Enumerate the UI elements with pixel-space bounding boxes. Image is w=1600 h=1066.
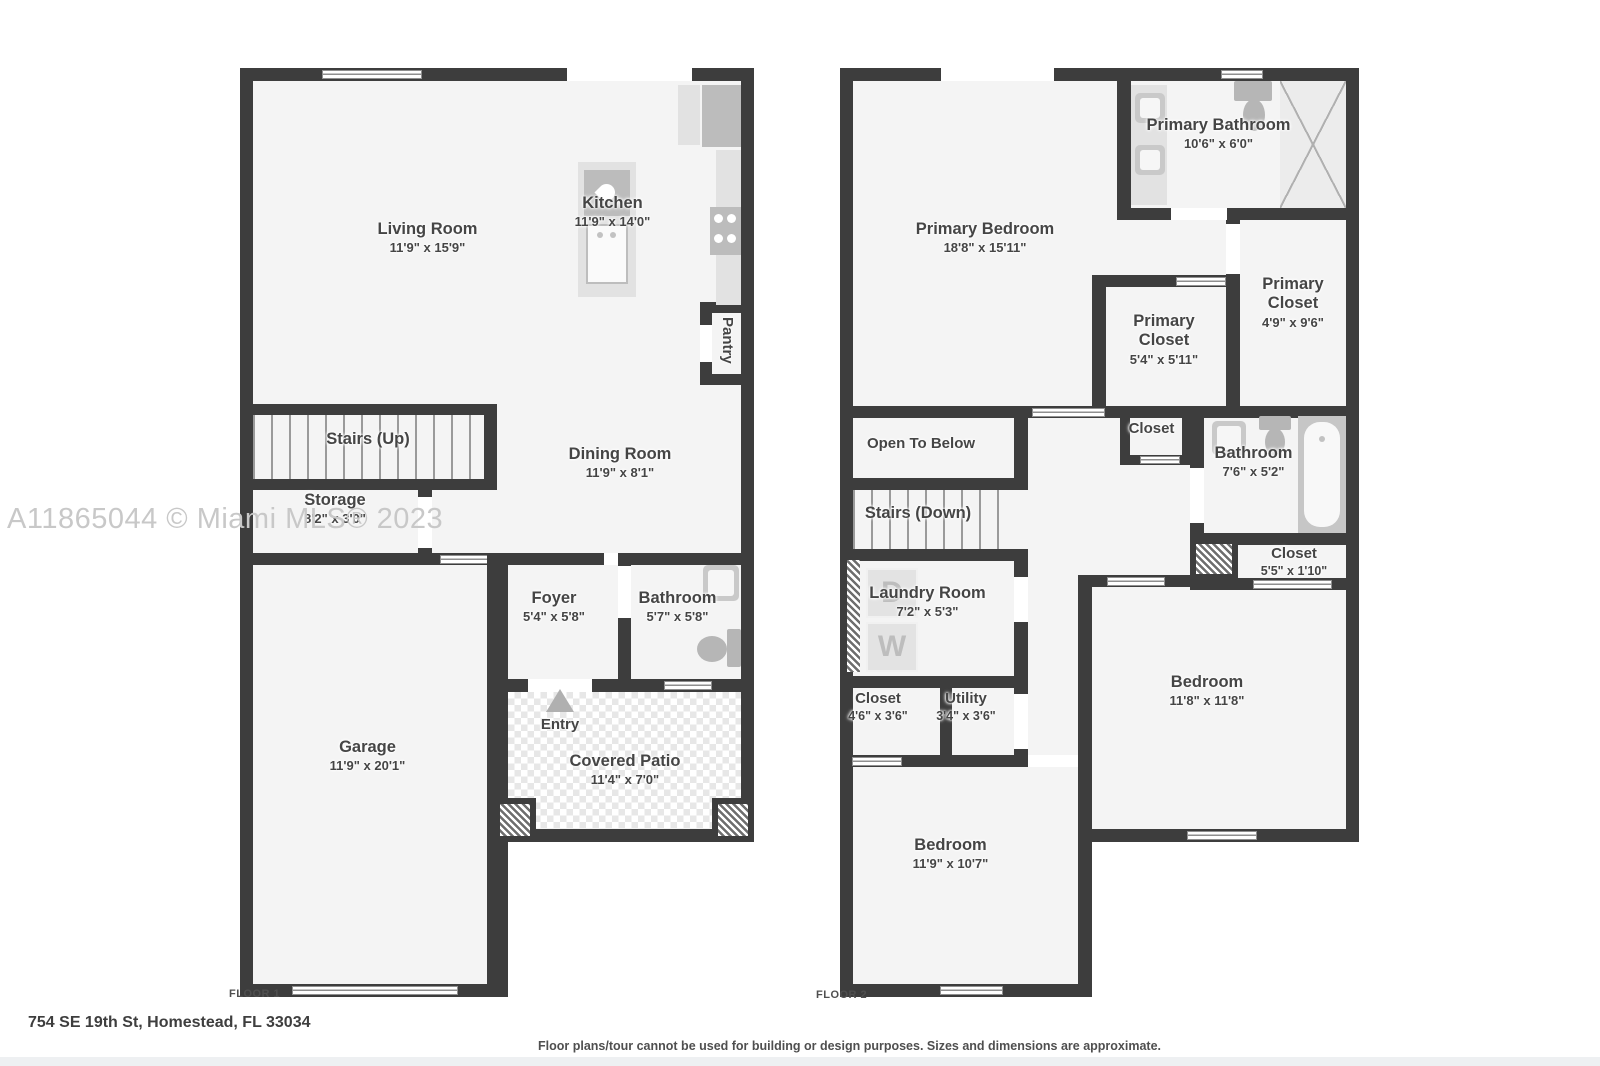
garage-footprint (240, 553, 494, 997)
door-opening (1014, 694, 1028, 749)
stairs-down-label: Stairs (Down) (838, 504, 998, 523)
sink-basin (1140, 98, 1160, 118)
window (664, 681, 712, 690)
wall (840, 68, 1359, 81)
floorplan-canvas: Living Room11'9" x 15'9" Kitchen11'9" x … (0, 0, 1600, 1066)
wall (840, 68, 853, 997)
window-opening (567, 68, 692, 81)
primary-bedroom-label: Primary Bedroom18'8" x 15'11" (880, 220, 1090, 256)
bedroom-right-label: Bedroom11'8" x 11'8" (1122, 673, 1292, 709)
burner-icon (727, 234, 736, 243)
door-opening (1140, 456, 1180, 464)
knob-icon (597, 232, 603, 238)
wall (1117, 208, 1359, 220)
pantry-label: Pantry (706, 308, 736, 372)
knob-icon (610, 232, 616, 238)
burner-icon (727, 214, 736, 223)
toilet-bowl-icon (697, 636, 727, 662)
wall (484, 404, 497, 490)
floor1-tag: FLOOR 1 (229, 988, 280, 1000)
wall (240, 404, 497, 415)
dining-room-label: Dining Room11'9" x 8'1" (540, 445, 700, 481)
window-opening (941, 68, 1054, 81)
closet-label: Closet4'6" x 3'6" (833, 690, 923, 723)
door-opening (1032, 408, 1105, 417)
fridge-icon (702, 85, 741, 147)
kitchen-label: Kitchen11'9" x 14'0" (545, 194, 680, 230)
door-opening (1014, 577, 1028, 622)
property-address: 754 SE 19th St, Homestead, FL 33034 (28, 1014, 311, 1032)
dishwasher-icon (586, 224, 628, 284)
bottom-strip (0, 1057, 1600, 1066)
window (322, 70, 422, 79)
window (1187, 831, 1257, 840)
door-opening (1171, 208, 1227, 220)
entry-arrow-icon (546, 689, 574, 712)
stove-icon (710, 207, 741, 255)
open-to-below-label: Open To Below (846, 435, 996, 453)
hall-closet-label: Closet (1114, 420, 1189, 438)
primary-bathroom-label: Primary Bathroom10'6" x 6'0" (1126, 116, 1311, 152)
floor2-tag: FLOOR 2 (816, 989, 867, 1001)
washer-icon: W (866, 622, 918, 672)
primary-closet-right-label: Primary Closet4'9" x 9'6" (1247, 275, 1339, 330)
wall (1346, 68, 1359, 842)
sink-basin (1140, 150, 1160, 170)
door-opening (852, 757, 902, 766)
bathroom-label: Bathroom5'7" x 5'8" (615, 589, 740, 625)
bathroom2-label: Bathroom7'6" x 5'2" (1186, 444, 1321, 480)
burner-icon (714, 234, 723, 243)
foyer-label: Foyer5'4" x 5'8" (500, 589, 608, 625)
stairs-up-label: Stairs (Up) (278, 430, 458, 449)
utility-label: Utility3'4" x 3'6" (920, 690, 1012, 723)
door-opening (1107, 577, 1165, 586)
entry-label: Entry (520, 716, 600, 734)
kitchen-counter (678, 85, 700, 145)
living-room-label: Living Room11'9" x 15'9" (300, 220, 555, 256)
wall (840, 676, 1028, 688)
window (1221, 70, 1263, 79)
primary-closet-left-label: Primary Closet5'4" x 5'11" (1108, 312, 1220, 367)
door-opening (1253, 580, 1332, 589)
wall (1092, 275, 1106, 418)
door-opening (1226, 224, 1240, 274)
linen-closet-label: Closet5'5" x 1'10" (1238, 545, 1350, 578)
garage-door (292, 986, 458, 995)
bedroom-left-label: Bedroom11'9" x 10'7" (868, 836, 1033, 872)
toilet-icon (727, 629, 741, 667)
chase-hatch (1190, 538, 1238, 580)
door-opening (1028, 755, 1083, 767)
burner-icon (714, 214, 723, 223)
wall (840, 549, 1028, 561)
wall (240, 479, 497, 490)
laundry-room-label: Laundry Room7'2" x 5'3" (850, 584, 1005, 620)
patio-column (494, 798, 536, 842)
garage-label: Garage11'9" x 20'1" (290, 738, 445, 774)
covered-patio-label: Covered Patio11'4" x 7'0" (535, 752, 715, 788)
door-opening (1176, 277, 1226, 286)
wall (741, 68, 754, 842)
patio-column (712, 798, 754, 842)
wall (840, 478, 1028, 490)
wall (1078, 575, 1092, 755)
window (940, 986, 1003, 995)
garage-door-opening (440, 555, 488, 564)
toilet-icon (1234, 81, 1272, 101)
wall (1014, 406, 1028, 490)
mls-watermark: A11865044 © Miami MLS® 2023 (7, 503, 443, 536)
wall (1078, 755, 1092, 997)
disclaimer-text: Floor plans/tour cannot be used for buil… (538, 1039, 1161, 1053)
